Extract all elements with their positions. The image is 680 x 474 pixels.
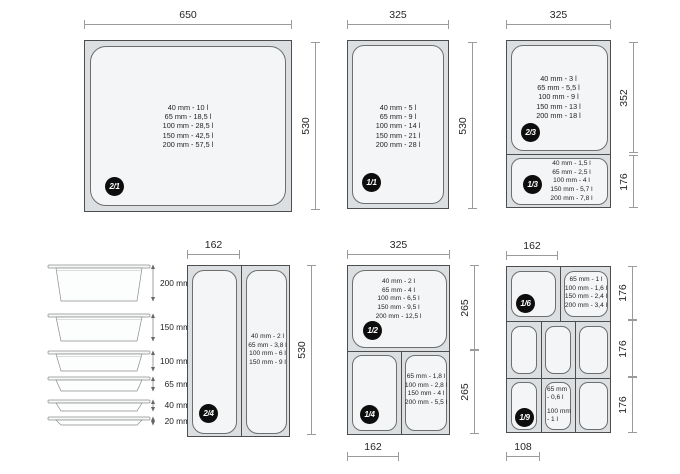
badge-gn16: 1/6 [516,294,535,313]
dim-line [633,42,634,153]
dim-grid-row1-height: 176 [617,266,633,320]
capacity-line: 40 mm - 10 l [85,103,291,112]
dim-label: 325 [347,239,450,252]
dim-line [506,255,558,256]
badge-gn14: 1/4 [360,405,379,424]
dim-label: 530 [300,117,312,135]
capacity-line: 150 mm - 9 l [244,359,291,368]
capacity-line: 65 mm - 2,5 l [535,169,608,178]
pan-side-view-100: 100 mm [48,351,190,371]
dim-label: 650 [84,9,292,22]
capacity-line: 200 mm - 7,8 l [535,195,608,204]
pan-divider [541,322,542,432]
pan-divider [241,266,242,436]
dim-label: 530 [457,117,469,135]
dim-grid-row3-height: 176 [617,377,633,433]
capacity-line: 150 mm - 2,4 l [563,293,609,302]
stacked-pans-illustration: 200 mm 150 mm 100 mm 65 mm 40 mm [42,256,192,432]
pan-side-view-40: 40 mm [48,400,190,411]
dim-line [84,24,292,25]
pan-divider [507,378,610,379]
badge-gn24: 2/4 [199,404,218,423]
dim-line [632,377,633,433]
pan-gn23-capacities: 40 mm - 3 l 65 mm - 5,5 l 100 mm - 9 l 1… [507,74,610,120]
dim-gn23-width: 325 [506,9,611,25]
dim-gn14-height: 265 [459,350,475,434]
capacity-line: 100 mm - 28,5 l [85,121,291,130]
dim-gn12-width: 325 [347,239,450,255]
dim-line [347,24,449,25]
capacity-line: 40 mm - 2 l [244,333,291,342]
capacity-line: 40 mm - 2 l [348,278,449,287]
capacity-line: 200 mm - 5,5 l [403,399,449,408]
pan-side-view-65: 65 mm [48,377,190,391]
badge-gn12: 1/2 [363,321,382,340]
capacity-line: 100 mm - 4 l [535,177,608,186]
pan-gn16-gn19: 1/6 65 mm - 1 l 100 mm - 1,6 l 150 mm - … [506,266,611,433]
pan-divider [560,267,561,321]
dim-gn14-width: 162 [347,441,399,457]
dim-gn19-width: 108 [506,441,540,457]
dim-gn24-height: 530 [296,265,312,435]
pan-gn13-capacities: 40 mm - 1,5 l 65 mm - 2,5 l 100 mm - 4 l… [535,160,608,204]
badge-gn11: 1/1 [362,173,381,192]
pan-gn21: 40 mm - 10 l 65 mm - 18,5 l 100 mm - 28,… [84,40,292,212]
dim-gn21-width: 650 [84,9,292,25]
dim-line [315,42,316,210]
capacity-line: 150 mm - 9,5 l [348,304,449,313]
capacity-line: - 0,6 l [547,394,573,402]
badge-gn19: 1/9 [515,408,534,427]
grid-cell [545,326,571,374]
depth-label: 200 mm [160,278,190,288]
capacity-line: 150 mm - 4 l [403,390,449,399]
capacity-line: 100 mm [547,408,573,416]
capacity-line: 150 mm - 13 l [507,102,610,111]
dim-label: 162 [347,441,399,454]
dim-gn16-width: 162 [506,240,558,256]
pan-gn24-capacities: 40 mm - 2 l 65 mm - 3,8 l 100 mm - 6 l 1… [244,333,291,368]
dim-gn21-height: 530 [300,42,316,210]
dim-line [633,155,634,208]
dim-line [506,456,540,457]
dim-line [474,350,475,434]
capacity-line: 150 mm - 42,5 l [85,131,291,140]
badge-gn23: 2/3 [521,123,540,142]
capacity-line: 150 mm - 21 l [348,131,448,140]
dim-label: 352 [618,89,630,107]
capacity-line: 65 mm [547,386,573,394]
dim-line [506,24,611,25]
pan-gn11: 40 mm - 5 l 65 mm - 9 l 100 mm - 14 l 15… [347,40,449,209]
pan-divider [348,351,449,352]
dim-line [632,266,633,320]
dim-gn24-width: 162 [187,239,240,255]
capacity-line: 200 mm - 12,5 l [348,313,449,322]
dim-label: 108 [506,441,540,454]
dim-label: 176 [618,173,630,191]
pan-gn11-capacities: 40 mm - 5 l 65 mm - 9 l 100 mm - 14 l 15… [348,103,448,149]
capacity-line: 200 mm - 3,4 l [563,302,609,311]
capacity-line: 150 mm - 5,7 l [535,186,608,195]
dim-line [472,42,473,209]
dim-label: 176 [617,396,629,414]
pan-gn24: 40 mm - 2 l 65 mm - 3,8 l 100 mm - 6 l 1… [187,265,290,437]
capacity-line: 200 mm - 18 l [507,111,610,120]
dim-label: 162 [506,240,558,253]
badge-gn21: 2/1 [105,177,124,196]
pan-divider [575,322,576,432]
capacity-line: 65 mm - 18,5 l [85,112,291,121]
pan-side-view-150: 150 mm [48,314,190,341]
pan-gn14-capacities: 65 mm - 1,8 l 100 mm - 2,8 l 150 mm - 4 … [403,373,449,408]
dim-grid-row2-height: 176 [617,320,633,377]
pan-gn16-capacities: 65 mm - 1 l 100 mm - 1,6 l 150 mm - 2,4 … [563,276,609,311]
capacity-line: 100 mm - 6 l [244,350,291,359]
dim-label: 325 [347,9,449,22]
capacity-line: 200 mm - 57,5 l [85,140,291,149]
dim-label: 162 [187,239,240,252]
capacity-line: 65 mm - 3,8 l [244,342,291,351]
pan-gn12-capacities: 40 mm - 2 l 65 mm - 4 l 100 mm - 6,5 l 1… [348,278,449,322]
gn-pan-size-diagram: 650 40 mm - 10 l 65 mm - 18,5 l 100 mm -… [0,0,680,474]
dim-line [347,254,450,255]
pan-side-view-200: 200 mm [48,265,190,301]
dim-gn12-height: 265 [459,265,475,350]
capacity-line: 65 mm - 1 l [563,276,609,285]
dim-line [347,456,399,457]
dim-gn13-height: 176 [618,155,634,208]
grid-cell [511,326,537,374]
grid-cell [579,326,608,374]
dim-line [311,265,312,435]
capacity-line: 40 mm - 5 l [348,103,448,112]
capacity-line: 65 mm - 4 l [348,287,449,296]
dim-line [632,320,633,377]
depth-label: 150 mm [160,322,190,332]
dim-line [474,265,475,350]
capacity-line: 65 mm - 9 l [348,112,448,121]
capacity-line: 100 mm - 1,6 l [563,285,609,294]
pan-gn12-gn14: 40 mm - 2 l 65 mm - 4 l 100 mm - 6,5 l 1… [347,265,450,435]
pan-divider [401,352,402,434]
dim-gn11-width: 325 [347,9,449,25]
dim-label: 176 [617,284,629,302]
pan-side-view-20: 20 mm [48,416,190,426]
capacity-line: 65 mm - 5,5 l [507,83,610,92]
pan-divider [507,154,610,155]
dim-label: 176 [617,340,629,358]
pan-gn19-capacities: 65 mm - 0,6 l 100 mm - 1 l [547,386,573,425]
pan-gn21-capacities: 40 mm - 10 l 65 mm - 18,5 l 100 mm - 28,… [85,103,291,149]
dim-label: 265 [459,299,471,317]
pan-gn23-gn13: 40 mm - 3 l 65 mm - 5,5 l 100 mm - 9 l 1… [506,40,611,208]
dim-label: 530 [296,341,308,359]
dim-gn11-height: 530 [457,42,473,209]
grid-cell [579,382,608,430]
capacity-line: - 1 l [547,416,573,424]
capacity-line: 200 mm - 28 l [348,140,448,149]
depth-label: 100 mm [160,356,190,366]
dim-line [187,254,240,255]
capacity-line: 100 mm - 6,5 l [348,295,449,304]
pan-divider [507,321,610,322]
capacity-line: 40 mm - 1,5 l [535,160,608,169]
capacity-line: 100 mm - 2,8 l [403,382,449,391]
dim-gn23-height: 352 [618,42,634,153]
dim-label: 325 [506,9,611,22]
capacity-line: 40 mm - 3 l [507,74,610,83]
capacity-line: 100 mm - 14 l [348,121,448,130]
capacity-line: 100 mm - 9 l [507,92,610,101]
dim-label: 265 [459,383,471,401]
capacity-line: 65 mm - 1,8 l [403,373,449,382]
